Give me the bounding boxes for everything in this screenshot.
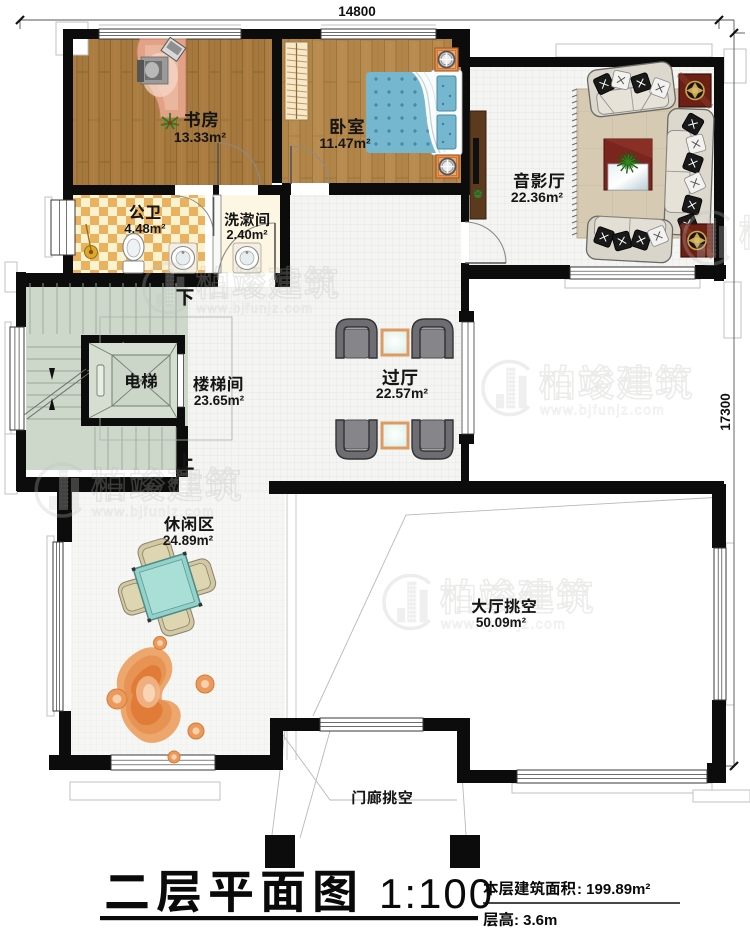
- svg-text:14800: 14800: [338, 4, 376, 19]
- svg-text:50.09m²: 50.09m²: [476, 615, 527, 630]
- svg-text:1:100: 1:100: [379, 870, 494, 917]
- svg-text:www.bjfunjz.com: www.bjfunjz.com: [539, 403, 665, 418]
- svg-text:www.bjfunjz.com: www.bjfunjz.com: [196, 301, 314, 316]
- svg-text:22.36m²: 22.36m²: [511, 189, 563, 205]
- svg-text:13.33m²: 13.33m²: [174, 129, 226, 145]
- svg-text:: 199.89m²: : 199.89m²: [577, 881, 650, 898]
- svg-text:11.47m²: 11.47m²: [319, 135, 371, 151]
- svg-text:: 3.6m: : 3.6m: [514, 912, 557, 929]
- svg-text:4.48m²: 4.48m²: [124, 221, 166, 236]
- svg-text:24.89m²: 24.89m²: [163, 533, 214, 548]
- svg-text:17300: 17300: [718, 393, 733, 431]
- svg-text:2.40m²: 2.40m²: [226, 227, 268, 242]
- svg-text:23.65m²: 23.65m²: [194, 393, 245, 408]
- svg-text:www.bjfunjz.com: www.bjfunjz.com: [91, 504, 215, 519]
- svg-text:22.57m²: 22.57m²: [376, 385, 428, 401]
